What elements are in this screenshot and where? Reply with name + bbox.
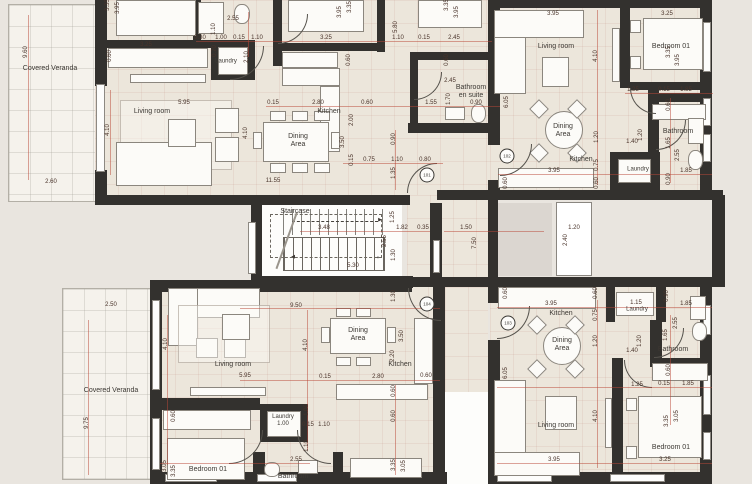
dimension-text: 0.75 <box>363 157 375 163</box>
chair <box>270 163 286 173</box>
label-kitchen-apt101: Kitchen <box>317 108 340 116</box>
dimension-text: 3.35 <box>171 465 177 477</box>
dimension-line <box>497 387 712 388</box>
dimension-text: 4.10 <box>593 410 599 422</box>
dimension-line <box>625 93 713 94</box>
chair <box>387 327 396 343</box>
dimension-text: 1.10 <box>391 157 403 163</box>
sofa-apt102 <box>494 10 584 38</box>
dimension-text: 0.75 <box>594 159 600 171</box>
dimension-text: 3.95 <box>548 457 560 463</box>
stair-dot: ● <box>377 256 379 261</box>
dimension-text: 1.50 <box>460 225 472 231</box>
dimension-text: 1.85 <box>680 168 692 174</box>
toilet-apt102 <box>688 150 703 170</box>
label-living-apt104: Living room <box>215 361 251 369</box>
dimension-text: 4.10 <box>593 50 599 62</box>
stair-up-arrow: ▶ <box>378 218 382 224</box>
floor-plan: 9.602.603.353.952.551.100.301.000.151.10… <box>0 0 752 484</box>
label-kitchen-apt104: Kitchen <box>388 361 411 369</box>
chair <box>314 163 330 173</box>
dimension-text: 11.55 <box>266 178 281 184</box>
dimension-text: 3.05 <box>401 460 407 472</box>
dimension-text: 0.60 <box>171 410 177 422</box>
dimension-text: 5.95 <box>239 373 251 379</box>
dimension-text: 0.15 <box>319 374 331 380</box>
wall-segment <box>412 277 723 287</box>
chair <box>292 163 308 173</box>
wall-segment <box>333 452 343 484</box>
tv-unit-apt101 <box>130 74 206 83</box>
label-living-apt102: Living room <box>538 43 574 51</box>
stair-down-arrow: ◀ <box>291 255 295 261</box>
dimension-text: 3.95 <box>548 168 560 174</box>
dimension-text: 1.65 <box>666 137 672 149</box>
window <box>610 474 665 482</box>
window <box>248 222 256 274</box>
dimension-text: 0.90 <box>391 133 397 145</box>
dimension-text: 0.60 <box>361 100 373 106</box>
dimension-text: 1.20 <box>594 131 600 143</box>
dimension-text: 1.40 <box>626 139 638 145</box>
unit-tag-102: 102 <box>500 149 515 164</box>
dimension-line <box>343 163 443 164</box>
dimension-text: 3.95 <box>337 6 343 18</box>
kitchen-counter-apt101 <box>282 52 338 68</box>
label-bath-ensuite-apt101: Bathroom en suite <box>456 84 486 100</box>
dimension-text: 3.50 <box>399 330 405 342</box>
sink-ensuite <box>445 107 465 120</box>
veranda-top-left <box>8 4 96 202</box>
coffee-table-apt102 <box>542 57 569 87</box>
dimension-line <box>307 310 308 450</box>
dimension-text: 1.35 <box>391 167 397 179</box>
dimension-line <box>597 300 598 468</box>
dimension-text: 2.60 <box>45 179 57 185</box>
bed-apt101-3 <box>418 0 482 28</box>
chair <box>356 357 371 366</box>
dimension-text: 2.55 <box>382 235 388 247</box>
label-dining-apt101: Dining Area <box>288 133 308 149</box>
dimension-text: 9.75 <box>84 417 90 429</box>
dimension-text: 0.15 <box>418 35 430 41</box>
label-dining-apt104: Dining Area <box>348 327 368 343</box>
chair <box>336 357 351 366</box>
dimension-text: 0.90 <box>470 100 482 106</box>
dimension-text: 3.25 <box>661 11 673 17</box>
dimension-text: 0.35 <box>417 225 429 231</box>
label-dining-apt103: Dining Area <box>552 337 572 353</box>
dimension-text: 0.60 <box>666 364 672 376</box>
dimension-text: 1.20 <box>568 225 580 231</box>
dimension-text: 2.45 <box>444 78 456 84</box>
dimension-text: 0.15 <box>302 422 314 428</box>
tv-unit-apt103 <box>605 398 612 448</box>
dimension-text: 1.20 <box>593 335 599 347</box>
wall-segment <box>437 190 723 200</box>
dimension-text: 3.25 <box>320 35 332 41</box>
dimension-text: 2.10 <box>244 51 250 63</box>
dimension-text: 0.80 <box>419 157 431 163</box>
label-kitchen-apt103: Kitchen <box>549 310 572 318</box>
dimension-text: 1.10 <box>392 35 404 41</box>
label-bathroom-apt104: Bathroom <box>278 473 308 481</box>
kitchen-counter-apt104 <box>336 384 428 400</box>
dimension-text: 1.40 <box>626 348 638 354</box>
dimension-text: 2.55 <box>673 317 679 329</box>
dimension-text: 0.60 <box>391 410 397 422</box>
label-kitchen-apt102: Kitchen <box>569 156 592 164</box>
window <box>96 84 105 172</box>
dimension-text: 1.00 <box>304 404 310 416</box>
dimension-text: 0.60 <box>420 373 432 379</box>
dimension-text: 3.50 <box>340 136 346 148</box>
dimension-text: 1.85 <box>682 381 694 387</box>
wall-segment <box>612 358 623 474</box>
label-bathroom-apt103: Bathroom <box>658 346 688 354</box>
window <box>703 134 711 162</box>
dimension-text: 3.05 <box>674 410 680 422</box>
sink-apt103 <box>690 296 706 320</box>
dimension-text: 1.10 <box>304 440 310 452</box>
unit-tag-104: 104 <box>420 297 435 312</box>
nightstand <box>630 20 641 33</box>
dimension-text: 1.30 <box>391 249 397 261</box>
dimension-text: 3.95 <box>547 11 559 17</box>
dimension-text: 1.10 <box>251 35 263 41</box>
wall-segment <box>410 52 492 60</box>
wall-segment <box>620 0 630 88</box>
toilet-apt103 <box>692 322 707 341</box>
elevator-landing <box>498 203 552 276</box>
dimension-line <box>444 231 544 232</box>
dimension-line <box>266 106 500 107</box>
dimension-text: 2.00 <box>349 114 355 126</box>
chair <box>321 327 330 343</box>
dimension-text: 7.50 <box>472 237 478 249</box>
dimension-text: 2.40 <box>563 234 569 246</box>
closet-apt104-hall <box>350 458 422 478</box>
dimension-line <box>497 463 712 464</box>
wall-segment <box>408 123 500 133</box>
dimension-text: 0.15 <box>349 154 355 166</box>
elevator-shaft <box>556 202 592 276</box>
dimension-text: 2.80 <box>372 374 384 380</box>
dimension-text: 0.90 <box>664 290 670 302</box>
label-covered-veranda-bottom: Covered Veranda <box>84 387 138 395</box>
window <box>703 22 711 72</box>
label-dining-apt102: Dining Area <box>553 123 573 139</box>
dimension-text: 0.60 <box>346 54 352 66</box>
label-living-apt101: Living room <box>134 108 170 116</box>
dimension-text: 3.25 <box>659 457 671 463</box>
window <box>152 418 160 470</box>
window <box>152 300 160 390</box>
dimension-text: 5.80 <box>393 21 399 33</box>
dimension-line <box>28 15 29 180</box>
dimension-line <box>160 463 310 464</box>
label-bedroom01-apt104: Bedroom 01 <box>189 466 227 474</box>
window <box>703 432 711 460</box>
dimension-text: 0.60 <box>503 177 509 189</box>
chair <box>356 308 371 317</box>
dimension-line <box>497 307 712 308</box>
dimension-line <box>300 231 430 232</box>
dimension-text: 9.50 <box>290 303 302 309</box>
void-strip <box>445 392 488 484</box>
kitchen-counter-apt101 <box>108 48 208 68</box>
dimension-text: 4.10 <box>163 338 169 350</box>
closet-apt103 <box>652 363 708 381</box>
dimension-text: 2.55 <box>675 149 681 161</box>
wall-segment <box>488 199 498 279</box>
armchair-apt101 <box>215 137 239 162</box>
coffee-table-apt101 <box>168 119 196 147</box>
dimension-text: 3.48 <box>318 225 330 231</box>
dimension-text: 3.35 <box>105 0 111 11</box>
dimension-text: 1.25 <box>627 87 639 93</box>
chair <box>331 132 340 149</box>
dimension-text: 0.15 <box>233 35 245 41</box>
dimension-text: 3.35 <box>391 459 397 471</box>
dimension-text: 1.70 <box>446 93 452 105</box>
dimension-text: 1.25 <box>390 211 396 223</box>
dimension-text: 1.10 <box>318 422 330 428</box>
dimension-text: 0.60 <box>444 54 450 66</box>
dimension-text: 0.60 <box>593 287 599 299</box>
dimension-text: 4.10 <box>303 339 309 351</box>
dimension-text: 3.35 <box>664 415 670 427</box>
dimension-text: 2.55 <box>227 16 239 22</box>
staircase-walk <box>292 221 378 222</box>
dimension-text: 0.15 <box>658 381 670 387</box>
nightstand <box>630 56 641 69</box>
chair <box>253 132 262 149</box>
nightstand <box>626 398 637 411</box>
dimension-text: 9.60 <box>23 46 29 58</box>
chair <box>270 111 286 121</box>
veranda-bottom-left <box>62 288 152 480</box>
wall-segment <box>606 287 615 322</box>
dimension-text: 3.95 <box>115 2 121 14</box>
wall-segment <box>95 0 107 86</box>
dimension-text: 1.20 <box>637 335 643 347</box>
sofa-apt101 <box>116 142 212 186</box>
tv-unit-apt104 <box>190 387 266 396</box>
bed-apt101-1 <box>116 0 196 36</box>
dimension-text: 1.20 <box>638 129 644 141</box>
window <box>703 375 711 415</box>
coffee-table-apt104 <box>222 314 250 340</box>
dimension-line <box>88 320 89 475</box>
dimension-text: 3.95 <box>675 54 681 66</box>
dimension-text: 0.70 <box>212 45 218 57</box>
label-laundry-apt104: Laundry 1.00 <box>272 414 294 428</box>
dimension-text: 3.25 <box>140 42 152 48</box>
wall-segment <box>281 43 379 51</box>
label-bedroom01-apt101: Bedroom 01 <box>131 0 169 2</box>
label-staircase: Staircase <box>280 208 309 216</box>
kitchen-counter-apt101 <box>282 68 340 86</box>
label-bathroom-apt102: Bathroom <box>663 128 693 136</box>
tv-unit-apt102 <box>612 28 620 82</box>
dimension-text: 3.95 <box>545 301 557 307</box>
dimension-text: 2.80 <box>312 100 324 106</box>
dimension-text: 0.60 <box>107 50 113 62</box>
dimension-text: 3.35 <box>444 0 450 11</box>
dimension-line <box>240 308 440 309</box>
chair <box>292 111 308 121</box>
dimension-line <box>240 380 440 381</box>
dimension-text: 0.60 <box>503 287 509 299</box>
dimension-text: 1.85 <box>680 87 692 93</box>
label-laundry-apt102: Laundry <box>627 167 649 174</box>
dimension-text: 2.45 <box>448 35 460 41</box>
label-living-apt103: Living room <box>538 422 574 430</box>
dimension-text: 0.60 <box>666 99 672 111</box>
dimension-text: 1.30 <box>391 290 397 302</box>
dimension-text: 1.10 <box>211 23 217 35</box>
window <box>433 240 440 273</box>
dimension-line <box>196 41 492 42</box>
dimension-text: 3.95 <box>454 6 460 18</box>
dimension-text: 2.55 <box>290 457 302 463</box>
sofa-apt103 <box>494 452 580 476</box>
dimension-text: 0.75 <box>593 309 599 321</box>
dimension-text: 5.95 <box>178 100 190 106</box>
dimension-text: 5.30 <box>347 263 359 269</box>
chair <box>336 308 351 317</box>
dimension-text: 0.30 <box>194 35 206 41</box>
dimension-text: 0.90 <box>666 173 672 185</box>
label-covered-veranda-top: Covered Veranda <box>23 65 77 73</box>
label-laundry-apt103: Laundry <box>626 307 648 314</box>
dimension-text: 0.60 <box>391 385 397 397</box>
wall-segment <box>377 0 385 52</box>
wall-segment <box>488 0 712 8</box>
dimension-text: 0.15 <box>267 100 279 106</box>
dimension-text: 4.10 <box>105 124 111 136</box>
dimension-text: 3.35 <box>347 1 353 13</box>
dimension-text: 0.60 <box>594 177 600 189</box>
dimension-text: 1.85 <box>680 301 692 307</box>
dimension-text: 6.05 <box>504 96 510 108</box>
label-bedroom01-apt103: Bedroom 01 <box>652 444 690 452</box>
dimension-text: 1.00 <box>215 35 227 41</box>
label-bedroom01-apt102: Bedroom 01 <box>652 43 690 51</box>
unit-tag-103: 103 <box>501 316 516 331</box>
dimension-text: 1.25 <box>631 382 643 388</box>
mid-corridor-floor <box>445 287 488 392</box>
dimension-text: 1.15 <box>630 300 642 306</box>
dimension-text: 3.05 <box>162 460 168 472</box>
armchair-apt101 <box>215 108 239 133</box>
dimension-text: 1.82 <box>396 225 408 231</box>
dimension-text: 2.50 <box>105 302 117 308</box>
dimension-line <box>498 174 712 175</box>
nightstand <box>626 446 637 459</box>
dimension-text: 0.15 <box>658 87 670 93</box>
dimension-text: 1.65 <box>663 329 669 341</box>
wall-segment <box>712 195 725 287</box>
label-laundry-apt101: Laundry <box>215 59 237 66</box>
dimension-text: 6.05 <box>503 367 509 379</box>
unit-tag-101: 101 <box>420 168 435 183</box>
dimension-text: 1.55 <box>425 100 437 106</box>
dimension-text: 4.10 <box>243 127 249 139</box>
